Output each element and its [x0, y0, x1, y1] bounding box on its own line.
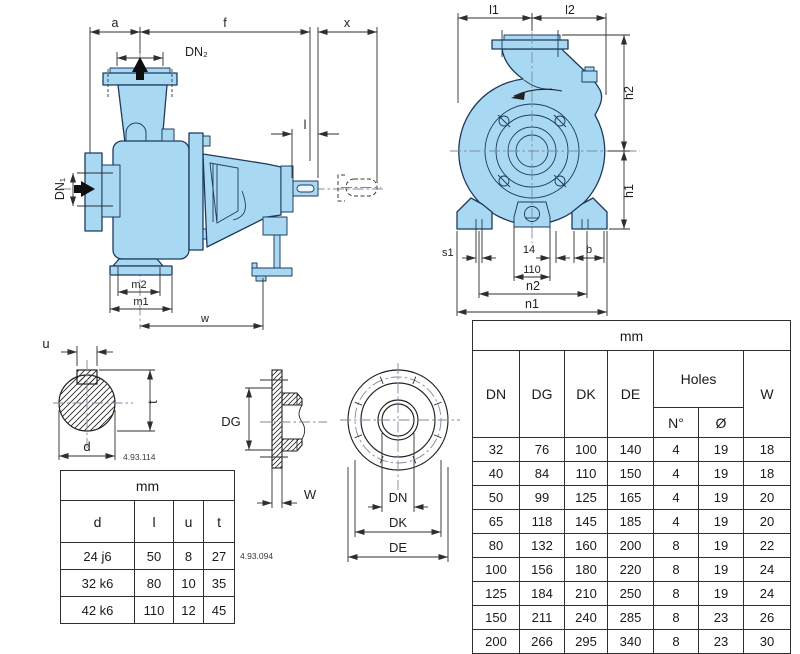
dim-label-dk: DK: [389, 515, 407, 530]
table-cell: 19: [699, 534, 744, 558]
col-dk: DK: [565, 351, 608, 438]
dim-label-14: 14: [523, 244, 535, 256]
counterflange-front-drawing: DN DK DE: [330, 355, 480, 600]
table-cell: 20: [744, 486, 791, 510]
col-u: u: [174, 501, 204, 543]
dim-label-dg: DG: [221, 414, 241, 429]
table-cell: 45: [204, 597, 235, 624]
table-cell: 4: [654, 438, 699, 462]
table-cell: 132: [520, 534, 565, 558]
table-cell: 50: [473, 486, 520, 510]
dim-label-f: f: [223, 16, 227, 30]
pump-side-view-drawing: a f x DN₂ l DN₁ m2 m1 w: [5, 5, 440, 330]
col-d: d: [61, 501, 135, 543]
table-cell: 100: [565, 438, 608, 462]
shaft-end-drawing: u t d 4.93.114: [15, 332, 210, 472]
col-holes-diameter: Ø: [699, 408, 744, 438]
dim-label-n2: n2: [526, 279, 540, 293]
drawing-code: 4.93.114: [123, 452, 156, 462]
table-cell: 18: [744, 462, 791, 486]
table-cell: 285: [608, 606, 654, 630]
table-cell: 184: [520, 582, 565, 606]
table-row: 509912516541920: [473, 486, 791, 510]
flange-table-body: 3276100140419184084110150419185099125165…: [473, 438, 791, 654]
table-cell: 27: [204, 543, 235, 570]
table-cell: 110: [135, 597, 174, 624]
table-cell: 80: [473, 534, 520, 558]
dim-label-dn2: DN₂: [185, 45, 208, 59]
pump-side-view: a f x DN₂ l DN₁ m2 m1 w: [5, 5, 440, 330]
dim-label-u: u: [42, 336, 49, 351]
shaft-end-section: u t d 4.93.114: [15, 332, 210, 472]
col-de: DE: [608, 351, 654, 438]
table-cell: 165: [608, 486, 654, 510]
table-cell: 211: [520, 606, 565, 630]
dim-label-l: l: [304, 118, 307, 132]
table-cell: 220: [608, 558, 654, 582]
dimension-labels: DN DK DE: [389, 490, 408, 555]
table-cell: 23: [699, 606, 744, 630]
dim-label-x: x: [344, 16, 351, 30]
dim-label-l1: l1: [489, 5, 499, 17]
table-cell: 50: [135, 543, 174, 570]
dim-label-t: t: [145, 400, 160, 404]
table-cell: 40: [473, 462, 520, 486]
table-cell: 19: [699, 558, 744, 582]
table-cell: 4: [654, 510, 699, 534]
table-row: 32 k6801035: [61, 570, 235, 597]
table-cell: 42 k6: [61, 597, 135, 624]
table-cell: 150: [473, 606, 520, 630]
dim-label-w: W: [304, 487, 317, 502]
table-row: 6511814518541920: [473, 510, 791, 534]
table-row: 12518421025081924: [473, 582, 791, 606]
pump-front-view-drawing: l1 l2 h2 h1 s1 14 110 b n2 n1: [440, 5, 800, 320]
dim-label-l2: l2: [565, 5, 575, 17]
col-t: t: [204, 501, 235, 543]
table-cell: 110: [565, 462, 608, 486]
table-cell: 210: [565, 582, 608, 606]
col-holes-n: N°: [654, 408, 699, 438]
table-cell: 80: [135, 570, 174, 597]
table-row: 24 j650827: [61, 543, 235, 570]
dim-label-dn1: DN₁: [53, 178, 67, 200]
table-row: 10015618022081924: [473, 558, 791, 582]
table-cell: 185: [608, 510, 654, 534]
dim-label-dn: DN: [389, 490, 408, 505]
col-holes: Holes: [654, 351, 744, 408]
dim-label-d: d: [83, 439, 90, 454]
unit-header: mm: [61, 471, 235, 501]
table-cell: 150: [608, 462, 654, 486]
table-cell: 99: [520, 486, 565, 510]
table-cell: 19: [699, 462, 744, 486]
table-cell: 250: [608, 582, 654, 606]
pump-body: [85, 68, 318, 281]
dim-label-b: b: [586, 244, 592, 256]
dim-label-s1: s1: [442, 247, 454, 259]
table-cell: 180: [565, 558, 608, 582]
table-cell: 20: [744, 510, 791, 534]
table-cell: 18: [744, 438, 791, 462]
table-cell: 84: [520, 462, 565, 486]
table-row: 15021124028582326: [473, 606, 791, 630]
table-cell: 32 k6: [61, 570, 135, 597]
table-cell: 26: [744, 606, 791, 630]
table-cell: 145: [565, 510, 608, 534]
catalog-page: { "side_view": {"a":"a","f":"f","x":"x",…: [0, 0, 800, 650]
unit-header: mm: [473, 321, 791, 351]
table-row: 408411015041918: [473, 462, 791, 486]
table-cell: 8: [174, 543, 204, 570]
dim-label-h2: h2: [622, 86, 636, 100]
table-cell: 32: [473, 438, 520, 462]
dim-label-m1: m1: [133, 296, 148, 308]
col-l: l: [135, 501, 174, 543]
table-row: 327610014041918: [473, 438, 791, 462]
table-cell: 140: [608, 438, 654, 462]
dim-label-110: 110: [523, 264, 541, 276]
table-cell: 8: [654, 558, 699, 582]
table-cell: 12: [174, 597, 204, 624]
dimension-labels: DG W 4.93.094: [221, 414, 317, 561]
dim-label-w: w: [200, 313, 209, 325]
table-cell: 19: [699, 486, 744, 510]
table-cell: 125: [565, 486, 608, 510]
table-cell: 118: [520, 510, 565, 534]
table-cell: 22: [744, 534, 791, 558]
table-cell: 160: [565, 534, 608, 558]
table-cell: 4: [654, 486, 699, 510]
table-cell: 4: [654, 462, 699, 486]
shaft-dimensions-table: mm d l u t 24 j65082732 k680103542 k6110…: [60, 470, 235, 624]
dim-label-a: a: [112, 16, 119, 30]
table-cell: 8: [654, 582, 699, 606]
table-cell: 24: [744, 582, 791, 606]
table-cell: 19: [699, 510, 744, 534]
table-cell: 24 j6: [61, 543, 135, 570]
table-cell: 8: [654, 606, 699, 630]
table-cell: 24: [744, 558, 791, 582]
table-row: 8013216020081922: [473, 534, 791, 558]
table-cell: 125: [473, 582, 520, 606]
table-cell: 35: [204, 570, 235, 597]
table-cell: 76: [520, 438, 565, 462]
table-cell: 19: [699, 582, 744, 606]
table-cell: 65: [473, 510, 520, 534]
counterflange-front: DN DK DE: [330, 355, 480, 600]
shaft-table-body: 24 j65082732 k680103542 k61101245: [61, 543, 235, 624]
table-cell: 240: [565, 606, 608, 630]
table-cell: 156: [520, 558, 565, 582]
dim-label-h1: h1: [622, 184, 636, 198]
pump-front-view: l1 l2 h2 h1 s1 14 110 b n2 n1: [440, 5, 800, 320]
table-cell: 10: [174, 570, 204, 597]
dim-label-de: DE: [389, 540, 407, 555]
table-row: 42 k61101245: [61, 597, 235, 624]
drawing-code: 4.93.094: [240, 551, 273, 561]
table-cell: 100: [473, 558, 520, 582]
col-dn: DN: [473, 351, 520, 438]
dim-label-n1: n1: [525, 297, 539, 311]
col-w: W: [744, 351, 791, 438]
table-cell: 19: [699, 438, 744, 462]
col-dg: DG: [520, 351, 565, 438]
table-cell: 8: [654, 534, 699, 558]
table-cell: 200: [608, 534, 654, 558]
flange-dimensions-table: mm DN DG DK DE Holes W N° Ø 327610014041…: [472, 320, 791, 654]
dim-label-m2: m2: [131, 279, 146, 291]
phantom-coupling: [338, 175, 381, 201]
